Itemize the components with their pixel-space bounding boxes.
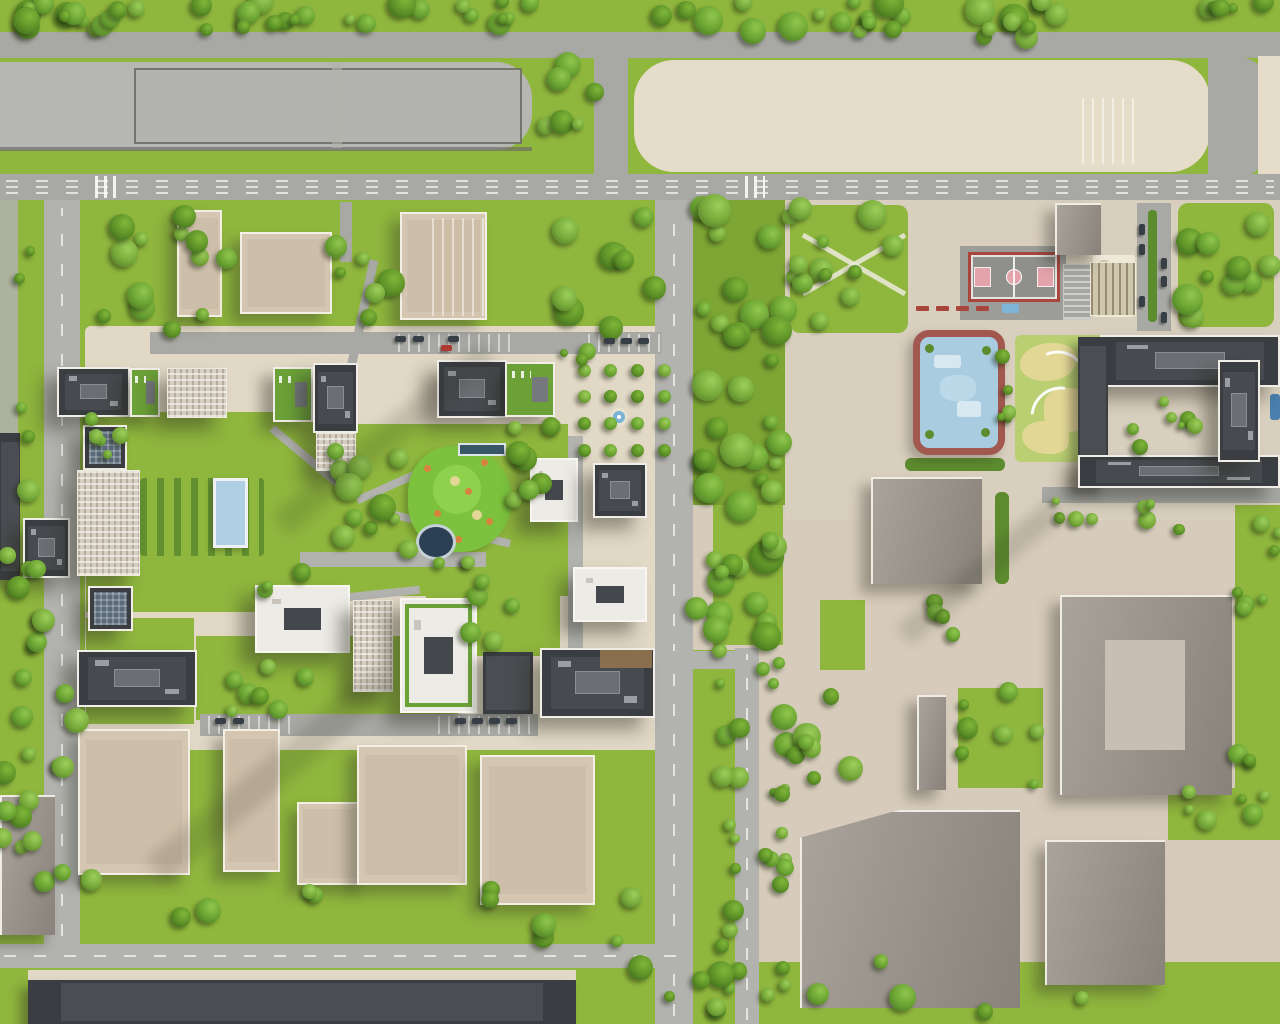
tree — [332, 525, 355, 548]
tree — [858, 200, 887, 229]
roof-core — [424, 637, 453, 675]
tree — [764, 415, 778, 429]
tree — [89, 429, 103, 443]
school-stadium — [913, 330, 1005, 455]
residential-tower — [167, 368, 227, 418]
roof-slats — [600, 650, 652, 668]
play-equipment — [424, 465, 431, 472]
roof-vent — [632, 501, 638, 506]
tree — [769, 456, 783, 470]
courtyard-pool — [213, 478, 248, 548]
tree — [542, 417, 560, 435]
tree — [52, 756, 74, 778]
tree — [0, 801, 16, 820]
tree — [460, 622, 481, 643]
tree — [959, 699, 969, 709]
parked-car — [604, 338, 615, 344]
tree — [81, 869, 103, 891]
tree — [85, 412, 98, 425]
parked-car — [1161, 258, 1167, 269]
roof-face — [489, 766, 587, 894]
tree — [614, 250, 634, 270]
court-key — [974, 267, 991, 286]
tree — [263, 581, 273, 591]
garden-tree — [631, 417, 644, 430]
tree — [1182, 785, 1196, 799]
tree — [302, 884, 317, 899]
parked-car — [472, 718, 483, 724]
roof-vent — [1127, 345, 1148, 350]
lot-joint — [332, 62, 342, 148]
tree — [740, 18, 766, 44]
tree — [289, 14, 300, 25]
tree — [1003, 385, 1013, 395]
tree — [552, 286, 577, 311]
crosswalk-mid — [745, 176, 765, 198]
garden-tree — [604, 417, 617, 430]
tree — [1201, 270, 1214, 283]
plaza-right-road — [1208, 58, 1264, 176]
tree — [1227, 256, 1251, 280]
tree — [778, 12, 807, 41]
tree — [357, 14, 376, 33]
roof-vent — [321, 376, 326, 383]
tree — [703, 616, 730, 643]
parked-car — [233, 718, 244, 724]
tree — [109, 1, 127, 19]
parked-car — [638, 338, 649, 344]
sand-spot — [450, 476, 460, 486]
tree — [325, 235, 347, 257]
roof-vent — [558, 661, 571, 668]
tree — [0, 547, 16, 563]
solar-panels — [94, 592, 127, 625]
tree — [977, 1003, 994, 1020]
garden-tree — [631, 390, 644, 403]
parked-car — [489, 718, 500, 724]
parked-car — [1139, 224, 1145, 235]
lane-marking — [6, 186, 1274, 188]
parked-car — [441, 345, 452, 351]
residential-tower — [57, 367, 130, 417]
tree — [365, 283, 385, 303]
roof-core — [532, 377, 548, 403]
tree — [1197, 232, 1220, 255]
tree — [789, 255, 808, 274]
tree — [297, 668, 314, 685]
roof-core — [295, 382, 307, 408]
roof-shading — [919, 697, 946, 790]
parked-car — [395, 336, 406, 342]
context-building — [240, 232, 332, 314]
splash-pad — [1002, 304, 1019, 313]
parked-car — [506, 718, 517, 724]
tree — [758, 848, 773, 863]
tree — [798, 734, 814, 750]
tree — [773, 657, 785, 669]
roof-core — [146, 381, 155, 404]
residential-tower — [77, 470, 140, 576]
tree — [792, 273, 812, 293]
bush — [981, 428, 990, 437]
solar-heaters — [135, 376, 146, 382]
tree — [127, 282, 154, 309]
bush — [925, 430, 934, 439]
podium — [483, 652, 533, 714]
parked-car — [448, 336, 459, 342]
tree — [32, 609, 55, 632]
roof-core — [80, 384, 108, 400]
bench — [936, 306, 949, 311]
roof-core — [596, 586, 624, 603]
tree — [1237, 794, 1247, 804]
bench — [976, 306, 989, 311]
tree — [724, 819, 736, 831]
tree — [723, 900, 744, 921]
roof-face — [365, 755, 458, 875]
tree — [196, 898, 221, 923]
school-gym-wing — [1218, 360, 1260, 462]
roof-vent — [602, 473, 608, 478]
tree — [882, 235, 903, 256]
roof-vent — [624, 696, 637, 703]
tree — [634, 207, 654, 227]
garden-tree — [604, 364, 617, 377]
tree — [13, 7, 40, 34]
tree — [216, 248, 237, 269]
tree — [586, 83, 603, 100]
tree — [547, 67, 571, 91]
tree — [356, 252, 369, 265]
bench — [956, 306, 969, 311]
crosswalk-west — [95, 176, 119, 198]
tree — [7, 576, 30, 599]
roof-vent — [165, 689, 179, 694]
lane-marking — [6, 180, 1274, 182]
garden-tree — [658, 364, 671, 377]
tree — [745, 592, 768, 615]
roof-vent — [414, 620, 421, 630]
roof-shading — [1057, 205, 1101, 255]
play-equipment — [434, 510, 441, 517]
tree — [1086, 513, 1098, 525]
tree — [346, 509, 363, 526]
lap-pool — [458, 443, 506, 456]
tree — [762, 532, 779, 549]
tree — [532, 913, 555, 936]
garden-tree — [631, 444, 644, 457]
roof-face — [303, 809, 361, 879]
tree — [729, 718, 750, 739]
parked-car — [1161, 312, 1167, 323]
tree — [599, 316, 623, 340]
green-roof-block — [273, 367, 313, 422]
roof-core — [327, 386, 343, 408]
tree — [17, 479, 40, 502]
roof-core — [1155, 352, 1225, 368]
tree — [1132, 439, 1148, 455]
tree — [841, 287, 860, 306]
slab-building — [77, 650, 197, 707]
context-building — [917, 695, 946, 790]
residential-tower — [573, 567, 647, 622]
campus-pergola — [1090, 262, 1136, 316]
field-marking — [934, 355, 961, 368]
residential-tower — [313, 363, 358, 433]
roof-core — [575, 671, 619, 693]
tree — [832, 12, 852, 32]
formal-garden — [584, 370, 664, 450]
roof-vent — [345, 411, 350, 418]
tree — [621, 887, 642, 908]
tree — [1246, 212, 1269, 235]
tree — [1146, 499, 1156, 509]
solar-heaters — [512, 371, 531, 378]
parked-car — [215, 718, 226, 724]
roof-vent — [69, 376, 77, 381]
tree — [345, 14, 356, 25]
roof-vent — [586, 578, 593, 583]
tree — [481, 891, 498, 908]
play-mound — [433, 465, 481, 514]
play-equipment — [481, 459, 488, 466]
tree — [27, 560, 46, 579]
tree — [237, 20, 250, 33]
roof-core — [1231, 393, 1246, 426]
roof-upper-level — [1105, 640, 1185, 750]
roof-face — [247, 239, 324, 308]
tree — [730, 863, 741, 874]
tree — [889, 984, 916, 1011]
roof-face — [61, 983, 543, 1022]
top-road — [0, 32, 1280, 58]
tree — [720, 433, 754, 467]
tree — [59, 10, 71, 22]
lot-edge — [0, 147, 532, 151]
residential-tower — [593, 463, 647, 518]
tree — [723, 277, 747, 301]
lane-marking — [6, 192, 1274, 194]
tree — [723, 324, 746, 347]
bench — [916, 306, 929, 311]
lane-marking — [4, 955, 688, 957]
play-equipment — [486, 518, 493, 525]
bush — [982, 346, 991, 355]
tree — [776, 827, 787, 838]
parked-car — [1139, 244, 1145, 255]
garden-tree — [578, 444, 591, 457]
se-lawn-6 — [820, 600, 865, 670]
tree — [776, 859, 793, 876]
tree — [1021, 20, 1035, 34]
tree — [1075, 991, 1089, 1005]
campus-drive-median — [1148, 210, 1157, 322]
tree — [173, 205, 196, 228]
tree — [715, 565, 728, 578]
roof-core — [1139, 466, 1218, 476]
parking-stripes — [438, 716, 538, 734]
tree — [677, 1, 696, 20]
parked-car — [1161, 276, 1167, 287]
tree — [461, 556, 475, 570]
garden-tree — [578, 390, 591, 403]
tree — [1173, 524, 1184, 535]
tree — [643, 276, 666, 299]
tree — [186, 230, 209, 253]
school-entrance-canopy — [1270, 394, 1280, 420]
solar-heaters — [279, 376, 294, 383]
tree — [135, 232, 148, 245]
parked-car — [1139, 296, 1145, 307]
tree — [708, 961, 734, 987]
garden-tree — [631, 364, 644, 377]
tree — [884, 21, 901, 38]
tree — [54, 864, 71, 881]
garden-tree — [604, 444, 617, 457]
tree — [819, 268, 832, 281]
tree — [22, 747, 36, 761]
tree — [1243, 804, 1263, 824]
tree — [26, 246, 36, 256]
lane-marking — [673, 208, 675, 1016]
roof-face — [486, 656, 530, 711]
tree — [505, 598, 520, 613]
tree — [128, 0, 145, 17]
tree — [807, 983, 829, 1005]
garden-tree — [658, 417, 671, 430]
tree — [955, 746, 969, 760]
tree — [196, 308, 209, 321]
roof-vent — [1108, 462, 1132, 465]
field-marking — [940, 375, 976, 402]
bleachers — [1063, 264, 1091, 320]
tree — [1187, 418, 1203, 434]
tree — [752, 622, 780, 650]
basketball-court — [968, 252, 1060, 302]
tree — [730, 834, 740, 844]
tree — [716, 678, 725, 687]
tree-row — [640, 950, 1280, 1020]
tree — [776, 961, 790, 975]
tree — [508, 421, 522, 435]
roof-core — [284, 608, 320, 630]
tree — [364, 521, 378, 535]
context-building — [357, 745, 467, 885]
tree — [712, 766, 733, 787]
roof-vent — [488, 400, 496, 405]
residential-tower — [400, 598, 477, 713]
tree — [697, 302, 711, 316]
tree — [823, 688, 839, 704]
aerial-masterplan-render — [0, 0, 1280, 1024]
rooftop-parking-stripes — [432, 218, 484, 316]
garden-tree — [578, 417, 591, 430]
south-slab-building — [28, 980, 576, 1024]
tree — [1258, 594, 1268, 604]
tree-cluster — [0, 620, 85, 935]
tree — [685, 597, 708, 620]
tree — [874, 954, 889, 969]
campus-hedge-row — [905, 458, 1005, 471]
parked-car — [621, 338, 632, 344]
parked-car — [455, 718, 466, 724]
parked-car — [413, 336, 424, 342]
tree — [838, 756, 863, 781]
court-key — [1037, 267, 1054, 286]
roof-vent — [1248, 431, 1253, 441]
tree — [1253, 515, 1270, 532]
center-line — [1013, 257, 1015, 297]
tree — [226, 705, 238, 717]
roof-vent — [95, 660, 109, 665]
campus-north-building — [1055, 203, 1101, 255]
sand-spot — [472, 510, 482, 520]
tree — [163, 321, 181, 339]
roof-vent — [1225, 378, 1230, 388]
tree — [707, 417, 729, 439]
roof-vent — [1227, 477, 1251, 480]
lot-inner — [134, 68, 522, 144]
green-roof-block — [130, 368, 160, 417]
tree — [817, 235, 829, 247]
tree — [1259, 255, 1280, 276]
tree — [814, 8, 827, 21]
tree — [1197, 810, 1217, 830]
tree — [64, 708, 89, 733]
roof-core — [114, 669, 160, 687]
benches-row — [916, 304, 1020, 318]
roof-core — [610, 481, 630, 498]
tree — [698, 194, 731, 227]
plaza-parking-stripes — [1082, 98, 1142, 164]
green-roof-block — [505, 362, 555, 417]
tree — [694, 449, 715, 470]
tree — [293, 563, 312, 582]
plaza-far-right — [1258, 56, 1280, 176]
tree — [200, 23, 213, 36]
tree — [109, 214, 135, 240]
tree — [848, 265, 862, 279]
tree — [111, 239, 139, 267]
tree — [1243, 754, 1255, 766]
field-marking — [957, 401, 980, 417]
tree — [999, 682, 1018, 701]
garden-tree — [658, 444, 671, 457]
tree — [946, 627, 960, 641]
bush — [925, 344, 934, 353]
tree — [266, 15, 282, 31]
roof-vent — [57, 559, 62, 565]
tree — [572, 118, 584, 130]
park-pond — [416, 524, 456, 560]
tree — [1068, 511, 1084, 527]
tree — [1172, 284, 1203, 315]
tree — [1236, 600, 1252, 616]
tree — [16, 402, 27, 413]
tree — [507, 441, 531, 465]
roof-vent — [272, 599, 281, 605]
garden-tree — [658, 390, 671, 403]
tree — [965, 0, 994, 25]
roof-vent — [110, 401, 118, 406]
residential-tower — [88, 586, 133, 631]
tree — [779, 979, 791, 991]
